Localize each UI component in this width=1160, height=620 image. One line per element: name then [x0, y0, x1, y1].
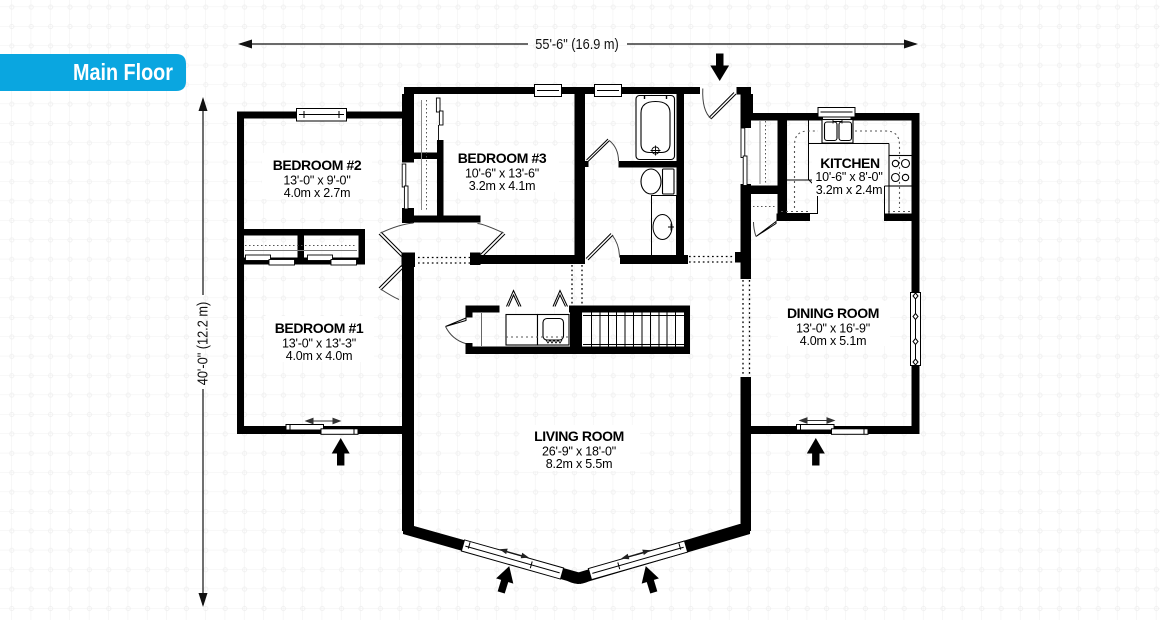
svg-text:DINING ROOM: DINING ROOM: [787, 305, 879, 321]
svg-text:40'-0" (12.2 m): 40'-0" (12.2 m): [195, 302, 211, 385]
svg-text:4.0m x 2.7m: 4.0m x 2.7m: [284, 186, 351, 200]
svg-text:3.2m x 4.1m: 3.2m x 4.1m: [469, 179, 536, 193]
svg-text:8.2m x 5.5m: 8.2m x 5.5m: [546, 457, 613, 471]
svg-text:BEDROOM #1: BEDROOM #1: [275, 320, 364, 336]
svg-text:LIVING ROOM: LIVING ROOM: [534, 428, 624, 444]
svg-text:3.2m x 2.4m: 3.2m x 2.4m: [816, 183, 883, 197]
svg-text:Main Floor: Main Floor: [73, 60, 174, 86]
svg-text:BEDROOM #2: BEDROOM #2: [273, 157, 362, 173]
svg-text:BEDROOM #3: BEDROOM #3: [458, 150, 547, 166]
svg-text:4.0m x 4.0m: 4.0m x 4.0m: [286, 349, 353, 363]
svg-text:KITCHEN: KITCHEN: [820, 155, 880, 171]
svg-text:10'-6" x 8'-0": 10'-6" x 8'-0": [815, 170, 882, 184]
svg-text:55'-6" (16.9 m): 55'-6" (16.9 m): [535, 36, 618, 52]
svg-text:4.0m x 5.1m: 4.0m x 5.1m: [800, 334, 867, 348]
